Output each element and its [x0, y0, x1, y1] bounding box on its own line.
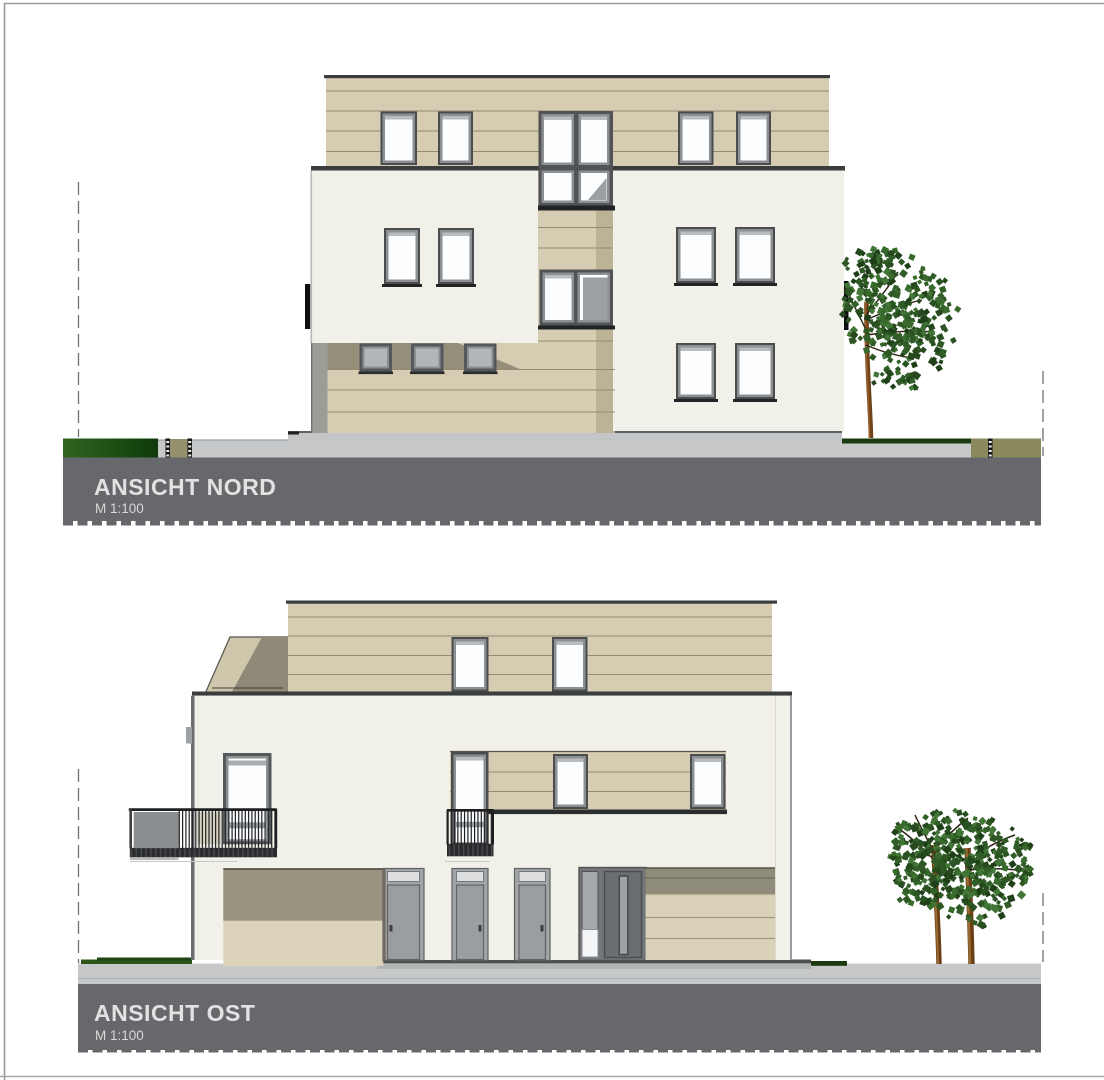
svg-text:M 1:100: M 1:100 [95, 501, 144, 516]
svg-text:ANSICHT OST: ANSICHT OST [94, 1000, 255, 1026]
svg-text:ANSICHT NORD: ANSICHT NORD [94, 474, 276, 500]
svg-text:M 1:100: M 1:100 [95, 1028, 144, 1043]
